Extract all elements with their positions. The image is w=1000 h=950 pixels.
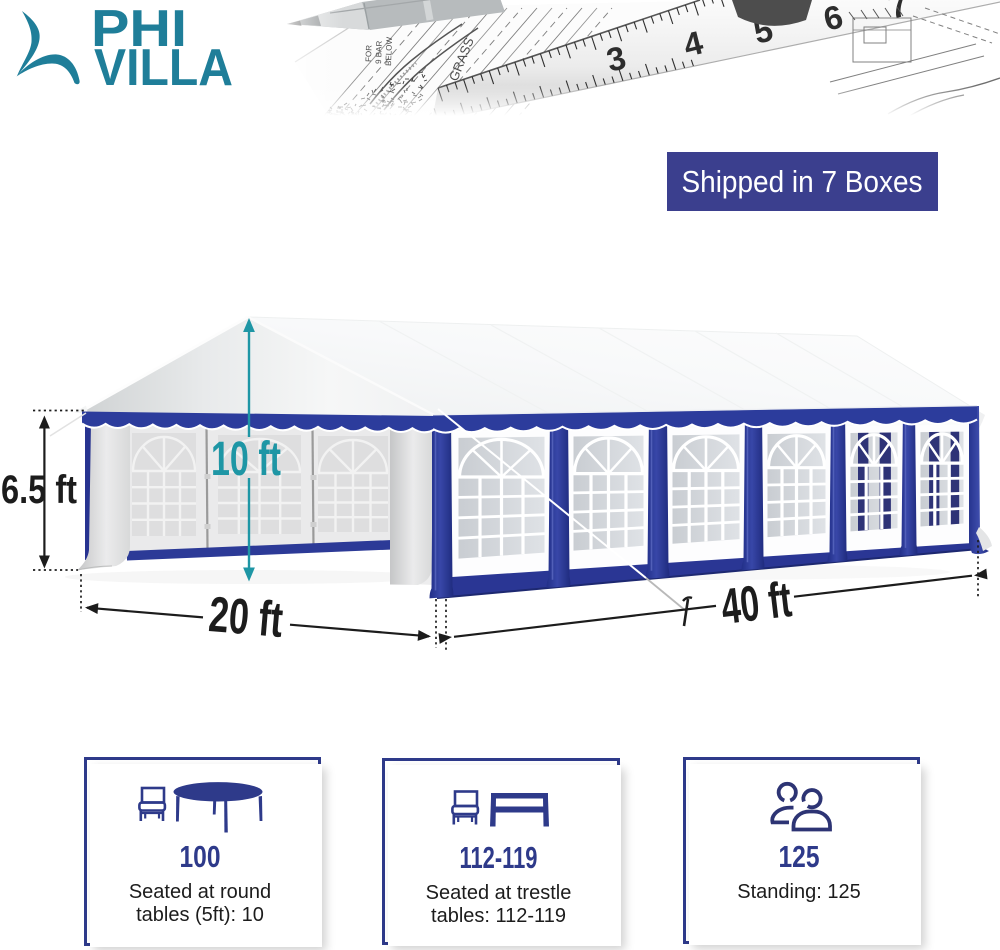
svg-text:125: 125 (779, 840, 820, 874)
svg-text:20 ft: 20 ft (207, 586, 286, 648)
svg-text:112-119: 112-119 (460, 841, 538, 875)
svg-text:6.5 ft: 6.5 ft (1, 468, 77, 512)
svg-text:100: 100 (180, 840, 221, 874)
svg-text:40 ft: 40 ft (718, 571, 794, 635)
svg-text:Shipped in 7 Boxes: Shipped in 7 Boxes (682, 164, 923, 199)
svg-text:VILLA: VILLA (94, 39, 233, 97)
svg-text:10 ft: 10 ft (211, 433, 281, 486)
